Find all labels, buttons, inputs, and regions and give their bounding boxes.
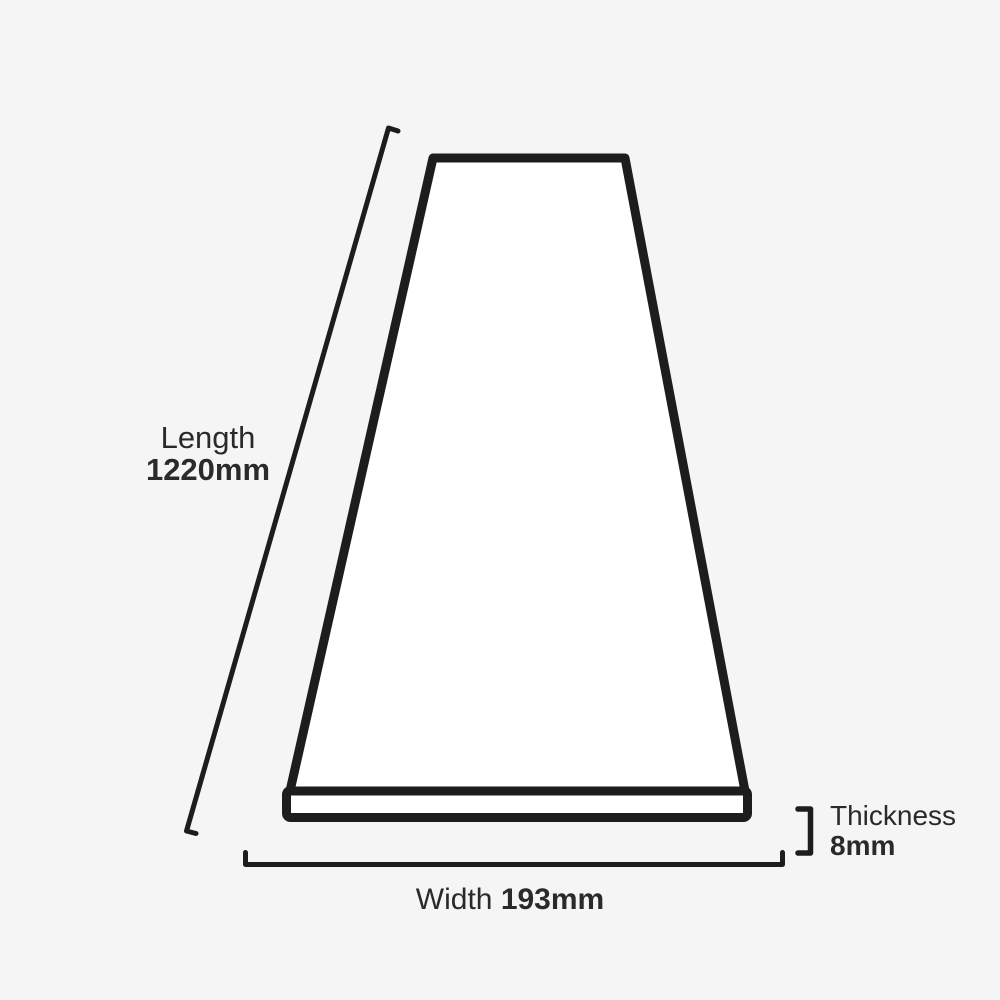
thickness-label-title: Thickness (830, 801, 956, 831)
width-label-value: 193mm (501, 883, 604, 916)
length-label: Length 1220mm (146, 422, 270, 486)
length-label-value: 1220mm (146, 454, 270, 486)
thickness-bracket (798, 809, 811, 853)
length-label-title: Length (146, 422, 270, 454)
plank-top-face (290, 158, 745, 791)
width-label-title: Width (416, 883, 493, 916)
thickness-label-value: 8mm (830, 831, 956, 861)
width-label: Width 193mm (416, 884, 604, 916)
plank-dimension-diagram: Length 1220mm Width 193mm Thickness 8mm (0, 0, 1000, 1000)
width-dimension-line (246, 853, 783, 865)
thickness-label: Thickness 8mm (830, 801, 956, 861)
